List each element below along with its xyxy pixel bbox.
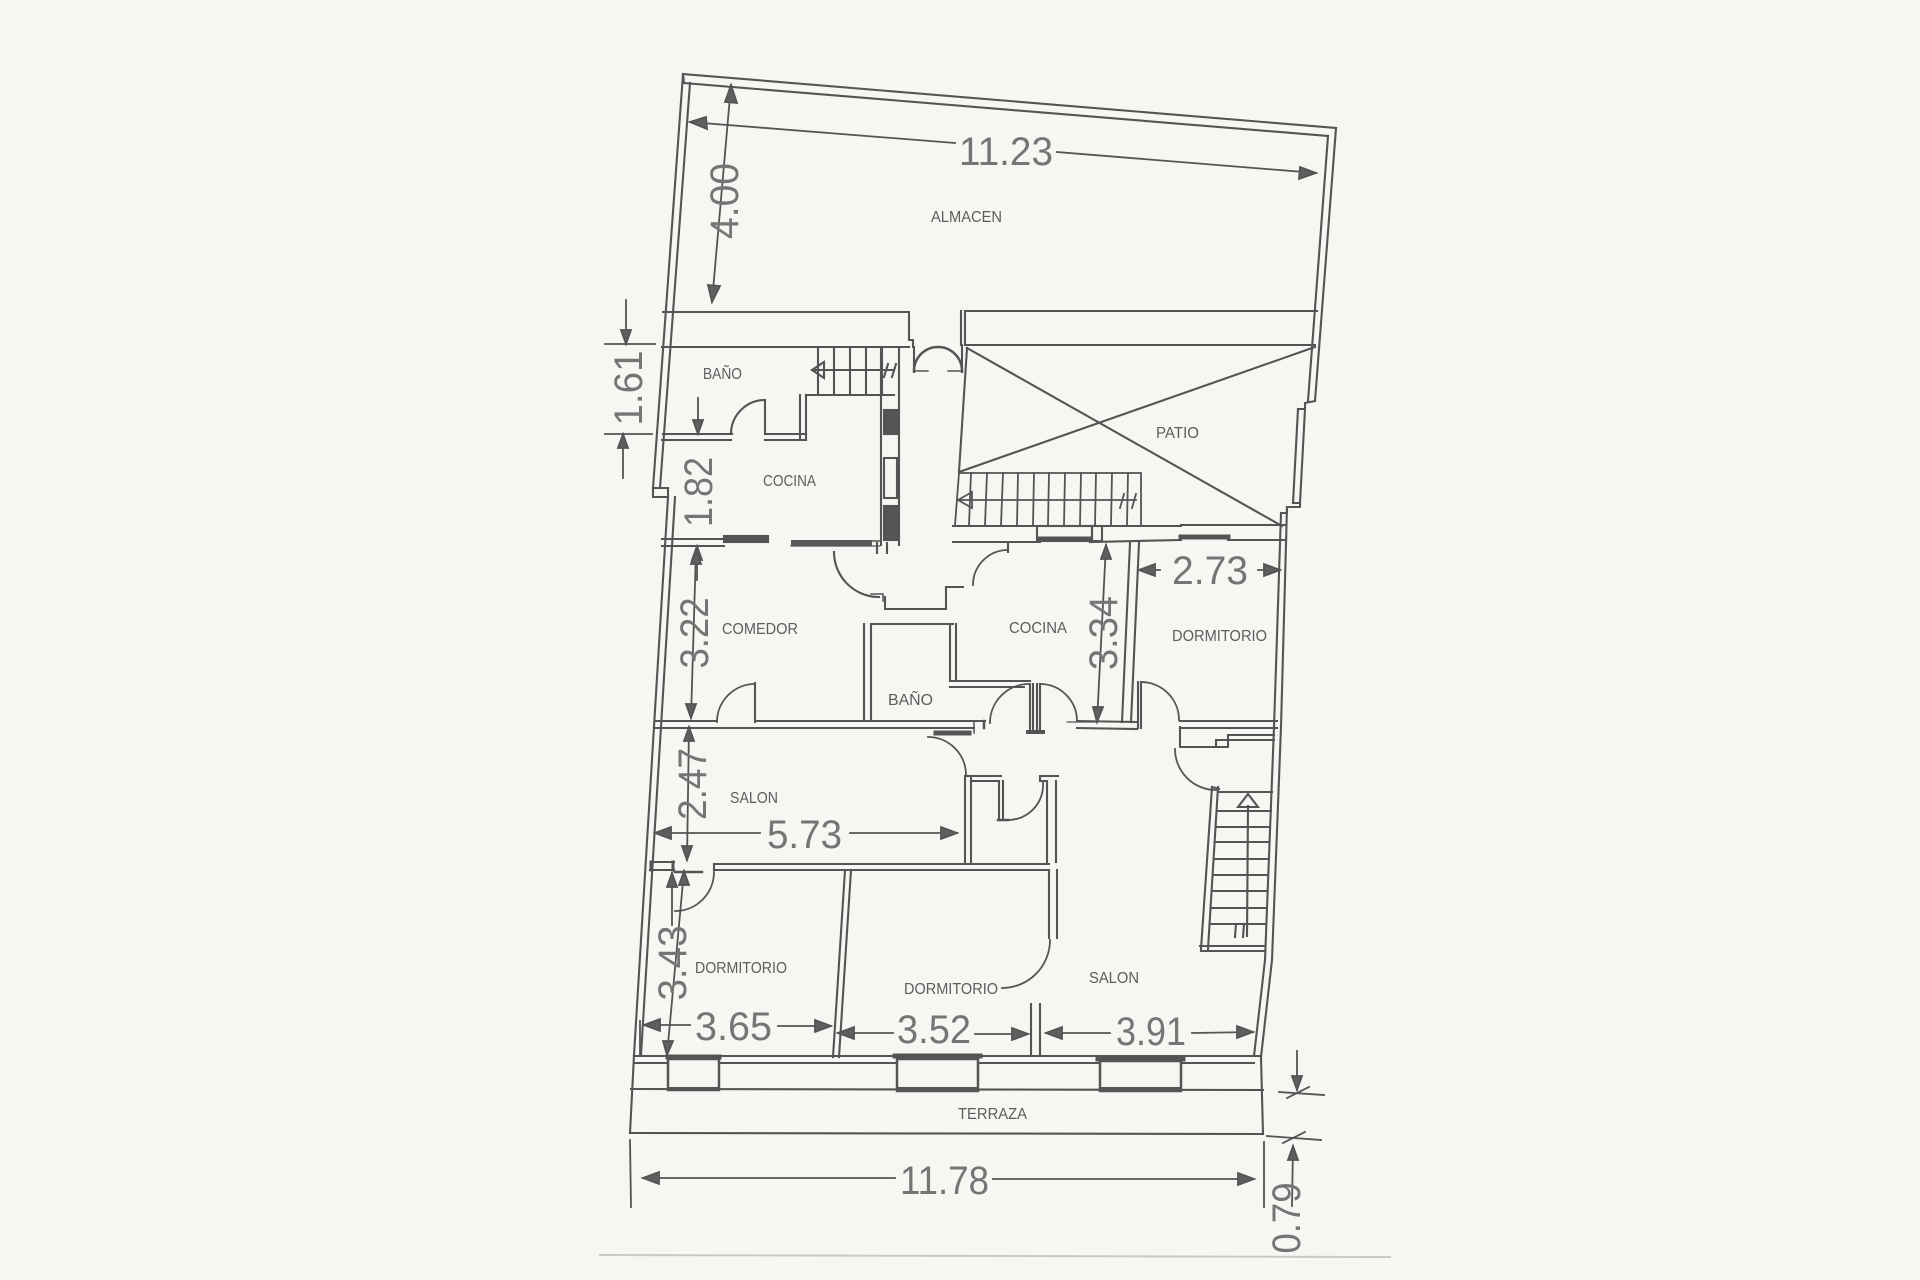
svg-text:11.23: 11.23 (959, 130, 1053, 174)
svg-text:BAÑO: BAÑO (703, 363, 742, 383)
svg-text:BAÑO: BAÑO (888, 689, 933, 709)
svg-text:1.61: 1.61 (607, 351, 651, 426)
svg-text:SALON: SALON (1089, 970, 1139, 987)
svg-text:COCINA: COCINA (763, 473, 816, 490)
svg-text:ALMACEN: ALMACEN (931, 209, 1002, 226)
svg-text:DORMITORIO: DORMITORIO (1172, 628, 1267, 645)
svg-text:3.91: 3.91 (1116, 1010, 1186, 1054)
svg-text:COCINA: COCINA (1009, 620, 1067, 637)
svg-text:DORMITORIO: DORMITORIO (695, 960, 787, 977)
svg-text:5.73: 5.73 (767, 813, 842, 857)
svg-text:2.47: 2.47 (671, 748, 715, 820)
svg-text:DORMITORIO: DORMITORIO (904, 981, 998, 998)
svg-text:SALON: SALON (730, 790, 778, 807)
svg-text:3.52: 3.52 (897, 1008, 971, 1052)
svg-text:1.82: 1.82 (677, 457, 721, 527)
svg-text:0.79: 0.79 (1265, 1183, 1309, 1254)
svg-text:TERRAZA: TERRAZA (958, 1106, 1027, 1123)
svg-text:3.43: 3.43 (651, 926, 695, 1001)
svg-text:3.22: 3.22 (673, 598, 717, 669)
svg-text:PATIO: PATIO (1156, 425, 1199, 442)
svg-text:3.65: 3.65 (695, 1005, 772, 1049)
svg-text:2.73: 2.73 (1172, 549, 1248, 593)
svg-text:3.34: 3.34 (1082, 596, 1126, 670)
svg-text:11.78: 11.78 (900, 1159, 989, 1203)
svg-text:4.00: 4.00 (703, 163, 747, 239)
svg-text:COMEDOR: COMEDOR (722, 621, 798, 638)
